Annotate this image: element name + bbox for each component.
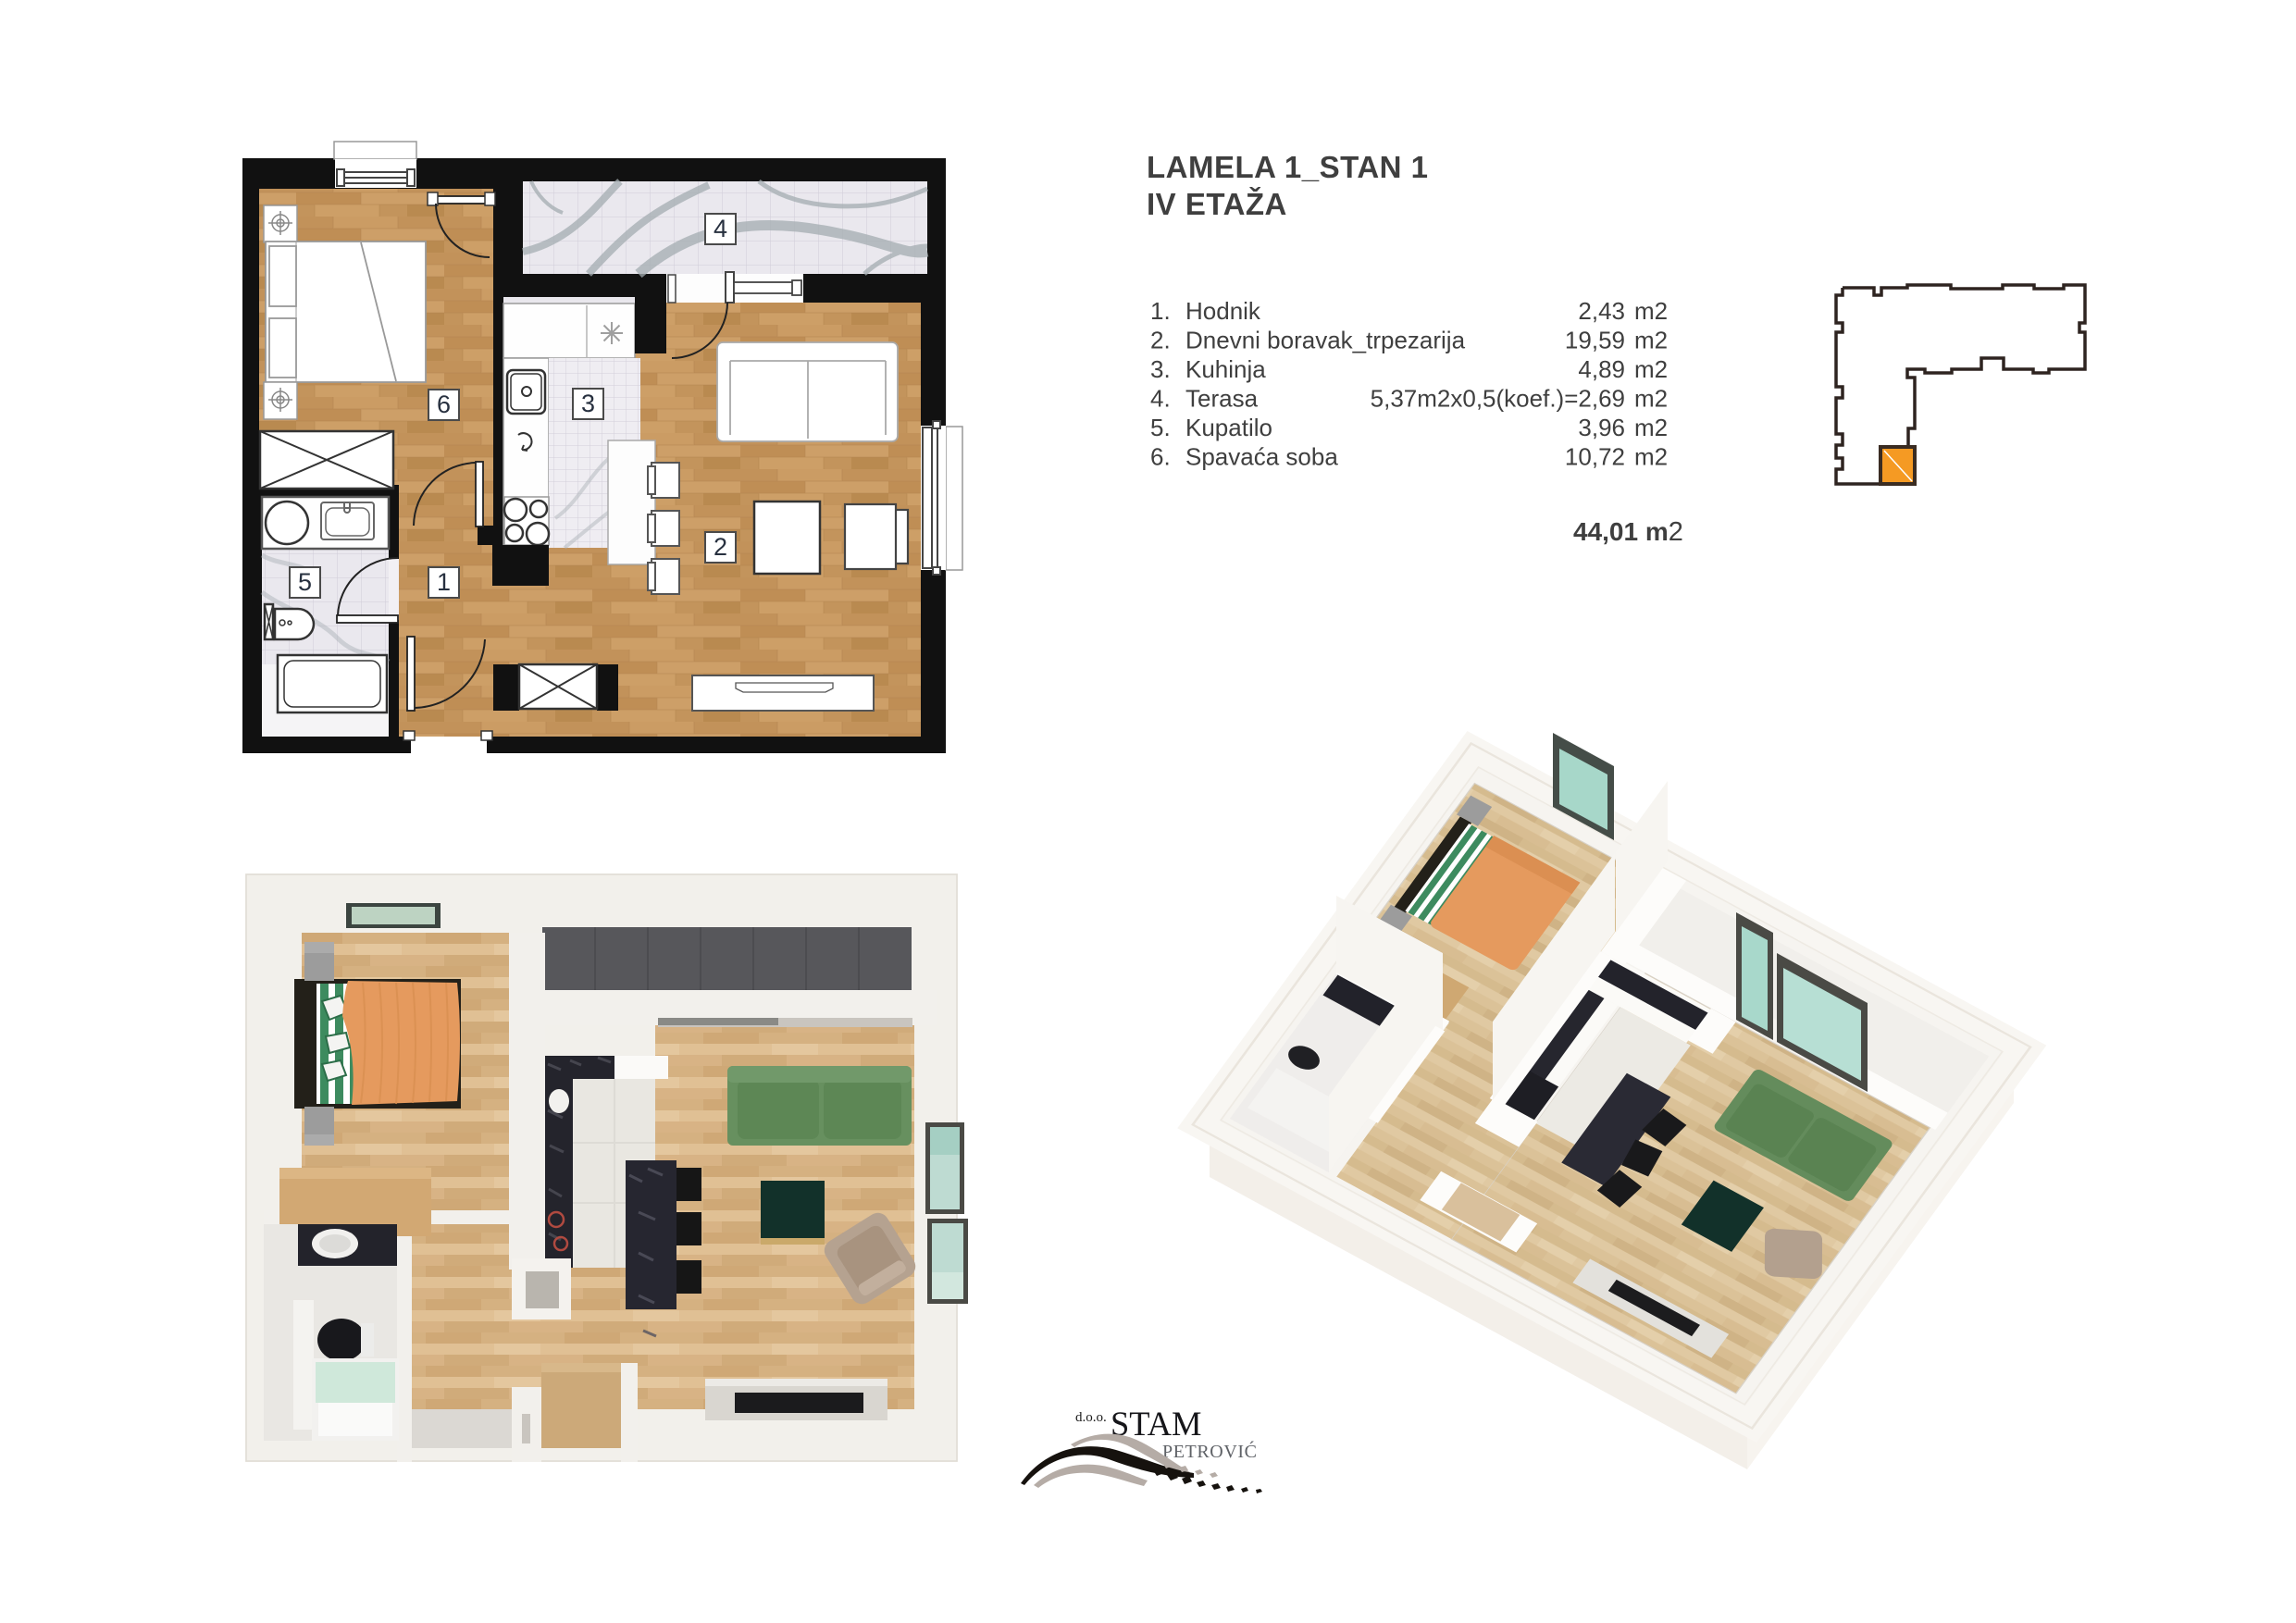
svg-text:5.: 5. xyxy=(1150,414,1171,441)
svg-text:6.: 6. xyxy=(1150,443,1171,471)
svg-text:44,01 m2: 44,01 m2 xyxy=(1573,517,1683,547)
svg-text:4,89: 4,89 xyxy=(1578,355,1625,383)
svg-text:Hodnik: Hodnik xyxy=(1185,297,1261,325)
svg-text:m2: m2 xyxy=(1634,355,1668,383)
svg-text:Kupatilo: Kupatilo xyxy=(1185,414,1272,441)
svg-text:m2: m2 xyxy=(1634,443,1668,471)
svg-text:2.: 2. xyxy=(1150,327,1171,354)
svg-text:Kuhinja: Kuhinja xyxy=(1185,355,1266,383)
svg-text:5,37m2x0,5(koef.)=2,69: 5,37m2x0,5(koef.)=2,69 xyxy=(1371,385,1625,413)
svg-text:IV ETAŽA: IV ETAŽA xyxy=(1147,187,1287,221)
svg-text:m2: m2 xyxy=(1634,385,1668,413)
svg-text:10,72: 10,72 xyxy=(1565,443,1625,471)
svg-text:5: 5 xyxy=(298,568,312,596)
svg-text:m2: m2 xyxy=(1634,414,1668,441)
svg-text:d.o.o.: d.o.o. xyxy=(1075,1410,1107,1425)
svg-text:Dnevni boravak_trpezarija: Dnevni boravak_trpezarija xyxy=(1185,327,1466,354)
svg-text:19,59: 19,59 xyxy=(1565,327,1625,354)
svg-text:LAMELA 1_STAN 1: LAMELA 1_STAN 1 xyxy=(1147,150,1429,184)
svg-text:4: 4 xyxy=(714,215,727,242)
svg-text:2: 2 xyxy=(714,533,727,561)
svg-text:1: 1 xyxy=(437,568,451,596)
svg-text:PETROVIĆ: PETROVIĆ xyxy=(1162,1440,1258,1462)
svg-text:m2: m2 xyxy=(1634,297,1668,325)
svg-text:6: 6 xyxy=(437,390,451,418)
svg-text:2,43: 2,43 xyxy=(1578,297,1625,325)
svg-text:m2: m2 xyxy=(1634,327,1668,354)
svg-text:Spavaća soba: Spavaća soba xyxy=(1185,443,1338,471)
svg-text:3,96: 3,96 xyxy=(1578,414,1625,441)
svg-text:Terasa: Terasa xyxy=(1185,385,1259,413)
svg-text:3.: 3. xyxy=(1150,355,1171,383)
svg-text:4.: 4. xyxy=(1150,385,1171,413)
svg-text:1.: 1. xyxy=(1150,297,1171,325)
svg-text:3: 3 xyxy=(581,390,595,417)
